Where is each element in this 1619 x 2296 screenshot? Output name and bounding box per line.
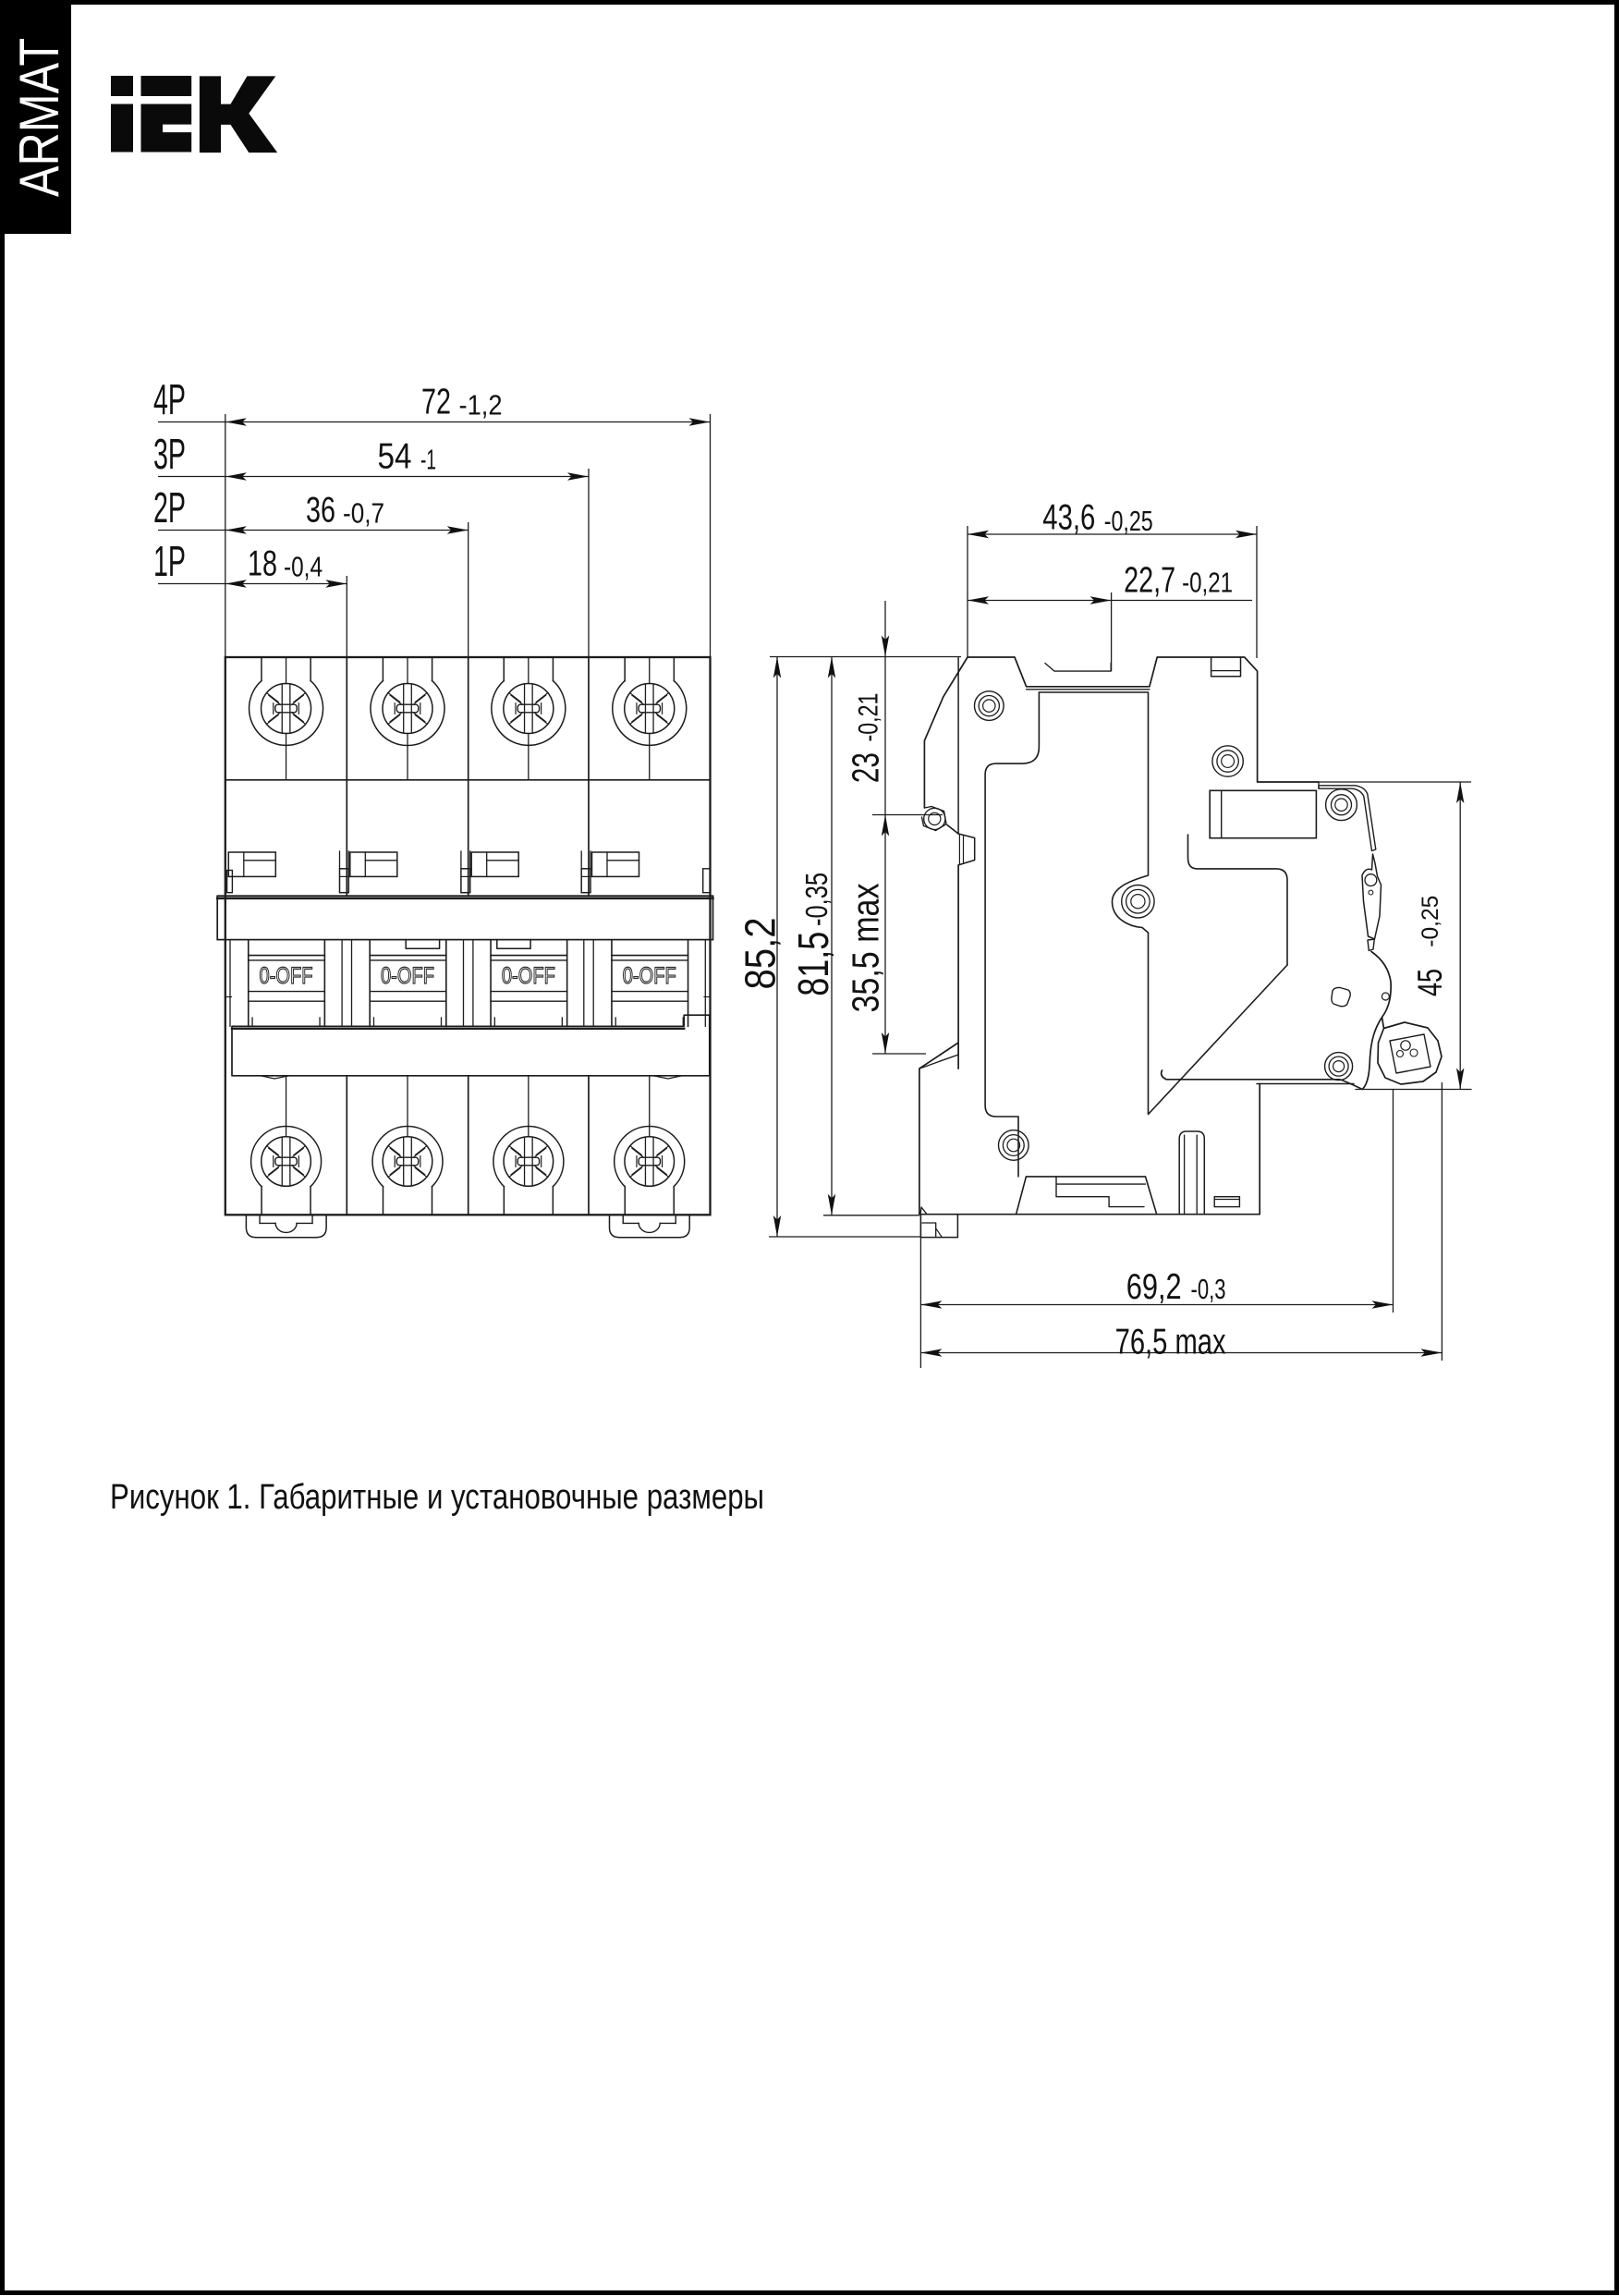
svg-text:4P: 4P (153, 375, 186, 423)
svg-text:-0,25: -0,25 (1418, 896, 1443, 947)
svg-text:-0,3: -0,3 (1191, 1273, 1226, 1305)
svg-text:-0,21: -0,21 (854, 693, 884, 742)
svg-text:-1: -1 (420, 444, 436, 476)
svg-text:18: 18 (248, 544, 277, 584)
svg-text:76,5 max: 76,5 max (1115, 1323, 1226, 1362)
svg-text:54: 54 (378, 437, 412, 477)
svg-text:0-OFF: 0-OFF (381, 963, 434, 989)
svg-text:ARMAT: ARMAT (8, 38, 70, 197)
svg-text:-1,2: -1,2 (459, 389, 503, 421)
svg-text:0-OFF: 0-OFF (260, 963, 313, 989)
svg-text:-0,21: -0,21 (1182, 567, 1233, 599)
svg-text:23: 23 (845, 752, 887, 783)
svg-text:22,7: 22,7 (1124, 561, 1175, 601)
svg-text:72: 72 (421, 383, 451, 422)
svg-text:43,6: 43,6 (1042, 498, 1095, 538)
svg-text:0-OFF: 0-OFF (623, 963, 676, 989)
svg-text:-0,35: -0,35 (799, 873, 834, 926)
svg-text:35,5 max: 35,5 max (845, 883, 887, 1012)
svg-text:0-OFF: 0-OFF (502, 963, 555, 989)
svg-text:85,2: 85,2 (736, 918, 785, 990)
svg-text:3P: 3P (153, 430, 186, 478)
svg-text:-0,4: -0,4 (284, 551, 323, 583)
svg-text:-0,7: -0,7 (343, 497, 384, 530)
svg-text:81,5: 81,5 (789, 932, 837, 996)
svg-text:45: 45 (1411, 969, 1449, 996)
svg-text:36: 36 (306, 491, 335, 531)
svg-text:1P: 1P (153, 537, 186, 585)
svg-text:2P: 2P (153, 483, 186, 531)
svg-text:-0,25: -0,25 (1104, 505, 1153, 537)
svg-text:Рисунок 1. Габаритные и устано: Рисунок 1. Габаритные и установочные раз… (110, 1478, 764, 1517)
svg-text:69,2: 69,2 (1126, 1267, 1182, 1307)
